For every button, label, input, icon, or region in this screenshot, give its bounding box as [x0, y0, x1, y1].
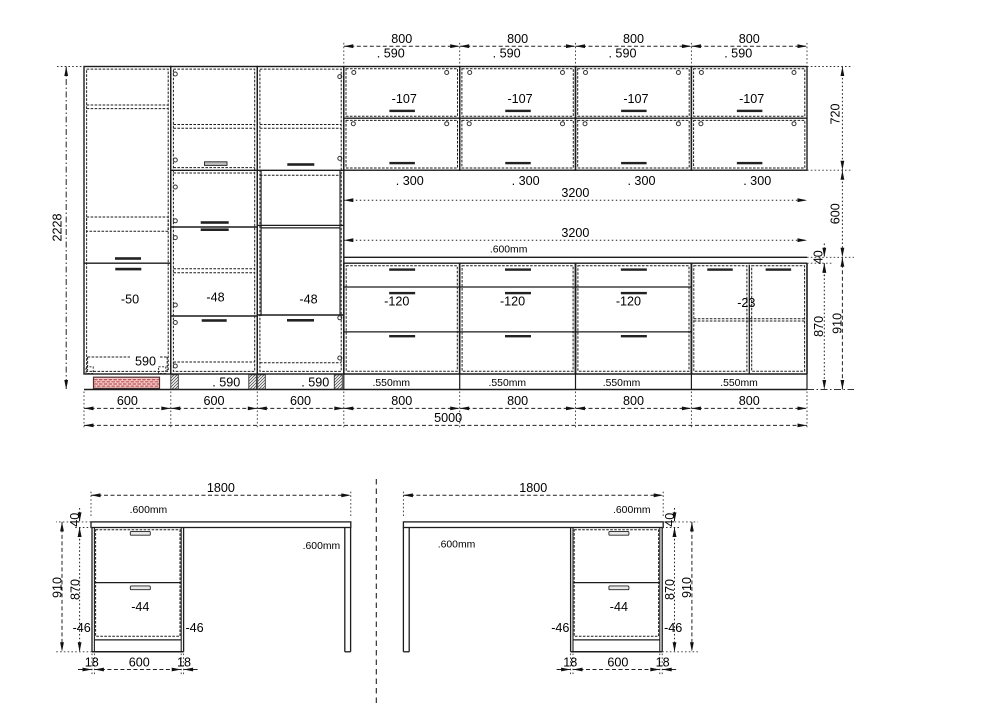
svg-text:2228: 2228 [50, 213, 64, 241]
svg-text:-107: -107 [507, 92, 532, 106]
svg-text:800: 800 [623, 32, 644, 46]
svg-text:.600mm: .600mm [613, 505, 651, 516]
svg-text:. 300: . 300 [743, 174, 771, 188]
svg-text:. 590: . 590 [608, 47, 636, 61]
svg-text:.550mm: .550mm [603, 378, 641, 389]
svg-text:-120: -120 [384, 294, 409, 308]
svg-text:. 590: . 590 [301, 375, 329, 389]
svg-text:40: 40 [663, 513, 677, 527]
svg-text:910: 910 [50, 577, 64, 598]
svg-text:590: 590 [135, 355, 156, 369]
svg-text:. 590: . 590 [724, 47, 752, 61]
svg-text:-50: -50 [121, 293, 139, 307]
svg-text:600: 600 [129, 655, 150, 669]
svg-text:800: 800 [391, 32, 412, 46]
svg-text:600: 600 [204, 394, 225, 408]
svg-text:40: 40 [68, 513, 82, 527]
svg-text:-107: -107 [623, 92, 648, 106]
svg-text:800: 800 [391, 394, 412, 408]
svg-text:910: 910 [830, 313, 844, 334]
svg-text:-46: -46 [185, 621, 203, 635]
svg-text:600: 600 [290, 394, 311, 408]
svg-text:5000: 5000 [434, 411, 462, 425]
svg-text:870: 870 [812, 316, 826, 337]
svg-text:600: 600 [117, 394, 138, 408]
svg-text:.550mm: .550mm [489, 378, 527, 389]
svg-text:720: 720 [828, 103, 842, 124]
svg-text:-48: -48 [206, 290, 224, 304]
svg-text:-44: -44 [610, 600, 628, 614]
svg-text:870: 870 [68, 579, 82, 600]
svg-text:800: 800 [507, 394, 528, 408]
svg-text:.600mm: .600mm [130, 505, 168, 516]
svg-text:18: 18 [563, 655, 577, 669]
svg-text:.550mm: .550mm [720, 378, 758, 389]
svg-text:800: 800 [739, 32, 760, 46]
svg-text:-107: -107 [739, 92, 764, 106]
svg-text:.550mm: .550mm [373, 378, 411, 389]
svg-text:.600mm: .600mm [303, 541, 341, 552]
svg-text:. 300: . 300 [627, 174, 655, 188]
svg-text:-120: -120 [616, 294, 641, 308]
svg-text:910: 910 [680, 577, 694, 598]
svg-text:800: 800 [623, 394, 644, 408]
svg-text:-46: -46 [73, 621, 91, 635]
svg-text:600: 600 [828, 203, 842, 224]
svg-text:18: 18 [85, 655, 99, 669]
svg-text:. 300: . 300 [512, 174, 540, 188]
svg-text:.600mm: .600mm [490, 244, 528, 255]
svg-text:.600mm: .600mm [438, 539, 476, 550]
svg-text:-46: -46 [664, 621, 682, 635]
svg-text:-44: -44 [131, 600, 149, 614]
svg-text:800: 800 [739, 394, 760, 408]
svg-text:-46: -46 [551, 621, 569, 635]
svg-text:3200: 3200 [561, 186, 589, 200]
svg-text:-120: -120 [500, 294, 525, 308]
svg-text:18: 18 [656, 655, 670, 669]
svg-text:1800: 1800 [519, 481, 547, 495]
svg-text:-48: -48 [299, 292, 317, 306]
svg-text:3200: 3200 [561, 226, 589, 240]
svg-text:. 590: . 590 [493, 47, 521, 61]
svg-text:-107: -107 [392, 92, 417, 106]
svg-text:-23: -23 [737, 296, 755, 310]
svg-text:. 590: . 590 [212, 375, 240, 389]
svg-text:1800: 1800 [207, 481, 235, 495]
svg-text:870: 870 [663, 579, 677, 600]
svg-text:600: 600 [607, 655, 628, 669]
svg-text:. 590: . 590 [377, 47, 405, 61]
svg-text:. 300: . 300 [396, 174, 424, 188]
svg-text:18: 18 [177, 655, 191, 669]
svg-text:40: 40 [812, 250, 826, 264]
svg-text:800: 800 [507, 32, 528, 46]
